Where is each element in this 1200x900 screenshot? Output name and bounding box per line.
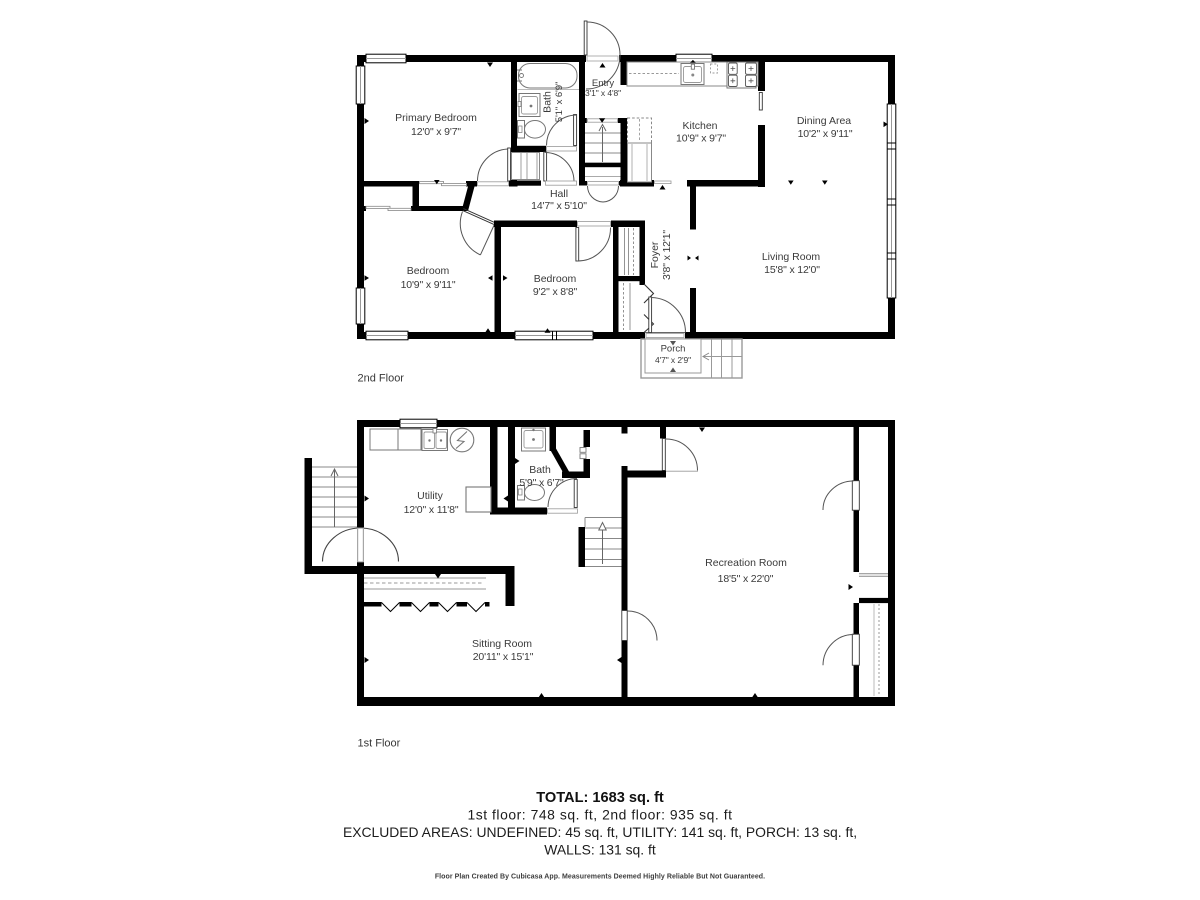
svg-text:12'0" x 9'7": 12'0" x 9'7" xyxy=(411,126,461,138)
svg-text:10'9" x 9'11": 10'9" x 9'11" xyxy=(401,279,456,291)
svg-text:1st floor: 748 sq. ft, 2nd flo: 1st floor: 748 sq. ft, 2nd floor: 935 sq… xyxy=(467,807,732,823)
svg-text:Bath: Bath xyxy=(529,464,551,476)
svg-text:Bedroom: Bedroom xyxy=(407,265,450,277)
svg-text:20'11" x 15'1": 20'11" x 15'1" xyxy=(473,651,534,663)
svg-text:15'8" x 12'0": 15'8" x 12'0" xyxy=(764,264,820,276)
svg-text:Kitchen: Kitchen xyxy=(682,120,717,132)
svg-text:Primary Bedroom: Primary Bedroom xyxy=(395,112,477,124)
svg-text:9'2" x 8'8": 9'2" x 8'8" xyxy=(533,286,578,298)
svg-text:18'5" x 22'0": 18'5" x 22'0" xyxy=(718,573,774,585)
svg-text:Living Room: Living Room xyxy=(762,251,821,263)
svg-text:Recreation Room: Recreation Room xyxy=(705,557,787,569)
svg-text:Bedroom: Bedroom xyxy=(534,273,577,285)
svg-text:Bath: Bath xyxy=(542,91,554,113)
svg-text:10'9" x 9'7": 10'9" x 9'7" xyxy=(676,133,726,145)
svg-text:TOTAL: 1683 sq. ft: TOTAL: 1683 sq. ft xyxy=(536,790,664,806)
svg-text:Hall: Hall xyxy=(550,188,568,200)
svg-text:3'8" x 12'1": 3'8" x 12'1" xyxy=(661,230,673,280)
svg-text:Floor Plan Created By Cubicasa: Floor Plan Created By Cubicasa App. Meas… xyxy=(435,874,765,881)
svg-text:1st Floor: 1st Floor xyxy=(358,738,401,750)
svg-text:3'1" x 4'8": 3'1" x 4'8" xyxy=(585,88,621,98)
svg-text:Dining Area: Dining Area xyxy=(797,115,851,127)
svg-text:5'9" x 6'7": 5'9" x 6'7" xyxy=(519,477,564,489)
svg-text:10'2" x 9'11": 10'2" x 9'11" xyxy=(798,128,853,140)
svg-text:12'0" x 11'8": 12'0" x 11'8" xyxy=(404,504,459,516)
svg-text:14'7" x 5'10": 14'7" x 5'10" xyxy=(531,200,587,212)
svg-text:EXCLUDED AREAS: UNDEFINED: 45: EXCLUDED AREAS: UNDEFINED: 45 sq. ft, UT… xyxy=(343,824,857,840)
svg-text:4'7" x 2'9": 4'7" x 2'9" xyxy=(655,355,691,365)
svg-text:5'1" x 6'9": 5'1" x 6'9" xyxy=(554,82,565,122)
svg-text:Sitting Room: Sitting Room xyxy=(472,638,532,650)
svg-text:Utility: Utility xyxy=(417,490,443,502)
svg-text:Foyer: Foyer xyxy=(649,241,661,268)
svg-text:Porch: Porch xyxy=(661,344,686,355)
svg-text:WALLS: 131 sq. ft: WALLS: 131 sq. ft xyxy=(544,842,656,858)
svg-text:2nd Floor: 2nd Floor xyxy=(358,373,405,385)
